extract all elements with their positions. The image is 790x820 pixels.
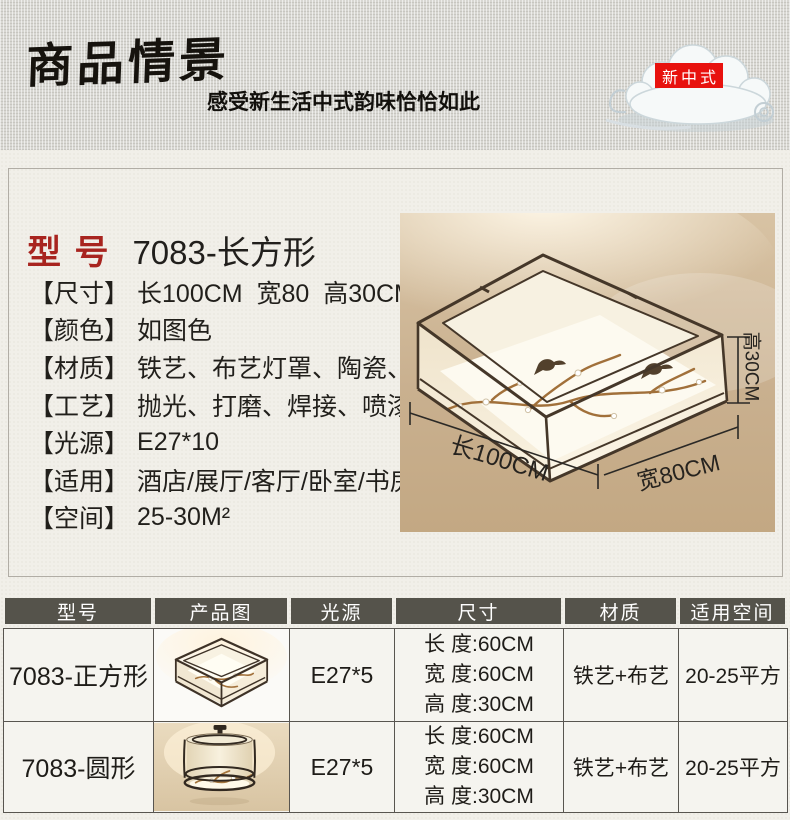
model-label: 型 号 bbox=[27, 225, 110, 274]
dimension-line: 高 度:30CM bbox=[424, 782, 534, 812]
dimension-line: 宽 度:60CM bbox=[424, 752, 534, 782]
spec-label: 【尺寸】 bbox=[29, 274, 129, 310]
table-header-row: 型号 产品图 光源 尺寸 材质 适用空间 bbox=[3, 598, 787, 624]
cell-space: 20-25平方 bbox=[679, 629, 788, 722]
column-header-material: 材质 bbox=[563, 598, 678, 624]
style-badge: 新中式 bbox=[655, 63, 723, 88]
spec-value: 抛光、打磨、焊接、喷漆 bbox=[137, 387, 412, 423]
column-header-size: 尺寸 bbox=[394, 598, 563, 624]
rectangular-lamp-illustration bbox=[400, 213, 775, 532]
column-header-space: 适用空间 bbox=[678, 598, 787, 624]
column-header-label: 适用空间 bbox=[680, 598, 785, 624]
spec-value: 25-30M² bbox=[137, 503, 230, 532]
banner: 商品情景 感受新生活中式韵味恰恰如此 新中式 bbox=[0, 0, 790, 150]
spec-value: E27*10 bbox=[137, 428, 219, 457]
spec-label: 【光源】 bbox=[29, 424, 129, 460]
cell-model: 7083-圆形 bbox=[4, 722, 154, 813]
dimension-line: 长 度:60CM bbox=[424, 722, 534, 752]
column-header-label: 光源 bbox=[291, 598, 392, 624]
spec-label: 【空间】 bbox=[29, 499, 129, 535]
page-subtitle: 感受新生活中式韵味恰恰如此 bbox=[207, 86, 480, 116]
spec-label: 【适用】 bbox=[29, 462, 129, 498]
spec-value: 铁艺、布艺灯罩、陶瓷、铜 bbox=[137, 349, 437, 385]
cell-photo-round-lamp bbox=[154, 722, 290, 813]
model-row: 型 号 7083-长方形 bbox=[27, 225, 316, 274]
spec-label: 【材质】 bbox=[29, 349, 129, 385]
product-detail-page: 商品情景 感受新生活中式韵味恰恰如此 新中式 型 号 7083-长方形 bbox=[0, 0, 790, 820]
cell-photo-square-lamp bbox=[154, 629, 290, 722]
table-body: 7083-正方形 bbox=[3, 628, 788, 813]
model-value: 7083-长方形 bbox=[132, 226, 315, 274]
product-photo-rectangular-lamp: 高30CM 长100CM 宽80CM bbox=[400, 213, 775, 532]
spec-label: 【工艺】 bbox=[29, 387, 129, 423]
dimension-line: 高 度:30CM bbox=[424, 690, 534, 720]
column-header-photo: 产品图 bbox=[153, 598, 289, 624]
cell-light-source: E27*5 bbox=[290, 722, 395, 813]
column-header-label: 尺寸 bbox=[396, 598, 561, 624]
cell-model: 7083-正方形 bbox=[4, 629, 154, 722]
models-table: 型号 产品图 光源 尺寸 材质 适用空间 7083-正方形 bbox=[3, 598, 787, 813]
cell-material: 铁艺+布艺 bbox=[564, 629, 679, 722]
spec-value: 长100CM 宽80 高30CM bbox=[137, 274, 415, 310]
dimensions-list: 长 度:60CM 宽 度:60CM 高 度:30CM bbox=[424, 630, 534, 720]
table-row-round-model: 7083-圆形 bbox=[4, 722, 788, 813]
dimension-line: 长 度:60CM bbox=[424, 630, 534, 660]
column-header-label: 材质 bbox=[565, 598, 676, 624]
table-row-square-model: 7083-正方形 bbox=[4, 629, 788, 722]
cell-dimensions: 长 度:60CM 宽 度:60CM 高 度:30CM bbox=[395, 722, 564, 813]
page-title: 商品情景 bbox=[25, 36, 231, 90]
cell-dimensions: 长 度:60CM 宽 度:60CM 高 度:30CM bbox=[395, 629, 564, 722]
dimension-line: 宽 度:60CM bbox=[424, 660, 534, 690]
dimensions-list: 长 度:60CM 宽 度:60CM 高 度:30CM bbox=[424, 722, 534, 812]
column-header-light: 光源 bbox=[289, 598, 394, 624]
column-header-label: 产品图 bbox=[155, 598, 287, 624]
round-lamp-illustration bbox=[154, 723, 289, 811]
cell-space: 20-25平方 bbox=[679, 722, 788, 813]
square-lamp-illustration bbox=[154, 629, 289, 721]
column-header-model: 型号 bbox=[3, 598, 153, 624]
cell-material: 铁艺+布艺 bbox=[564, 722, 679, 813]
spec-label: 【颜色】 bbox=[29, 311, 129, 347]
product-info-card: 型 号 7083-长方形 【尺寸】长100CM 宽80 高30CM 【颜色】如图… bbox=[8, 168, 783, 577]
spec-value: 如图色 bbox=[137, 311, 212, 347]
column-header-label: 型号 bbox=[5, 598, 151, 624]
dimension-height-label: 高30CM bbox=[740, 325, 767, 409]
cell-light-source: E27*5 bbox=[290, 629, 395, 722]
